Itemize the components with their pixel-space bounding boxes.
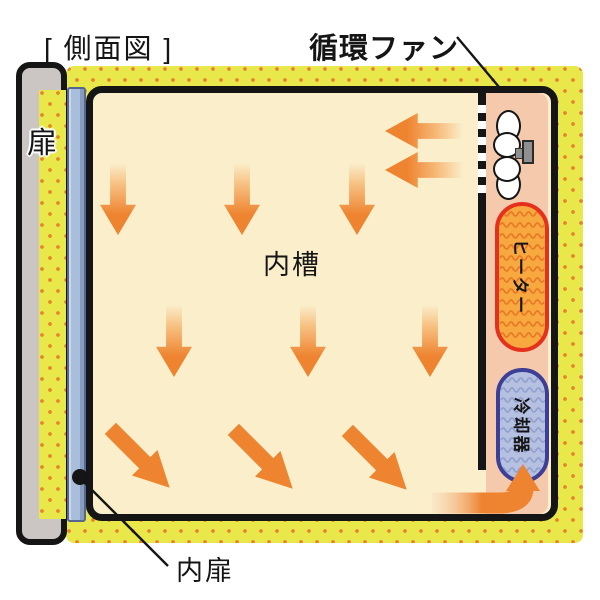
heater-element: ヒーター <box>495 202 549 352</box>
page-title: [ 側面図 ] <box>44 27 173 67</box>
inner-door-label: 内扉 <box>176 549 234 588</box>
side-view-diagram: ヒーター 冷却器 [ 側面図 ] 循環ファン 扉 内槽 内扉 <box>0 0 600 600</box>
partition-vent-dashes <box>478 105 486 201</box>
heater-label: ヒーター <box>510 239 535 315</box>
door-label: 扉 <box>27 118 57 162</box>
cooler-element: 冷却器 <box>496 368 549 483</box>
cooler-label: 冷却器 <box>510 397 535 454</box>
inner-door-panel <box>67 87 86 522</box>
circulation-fan-label: 循環ファン <box>309 25 459 67</box>
fan-motor-icon <box>522 140 534 164</box>
inner-tank-label: 内槽 <box>263 243 321 282</box>
inner-door-knob-dot <box>72 469 88 485</box>
fan-blade-icon <box>493 156 521 182</box>
